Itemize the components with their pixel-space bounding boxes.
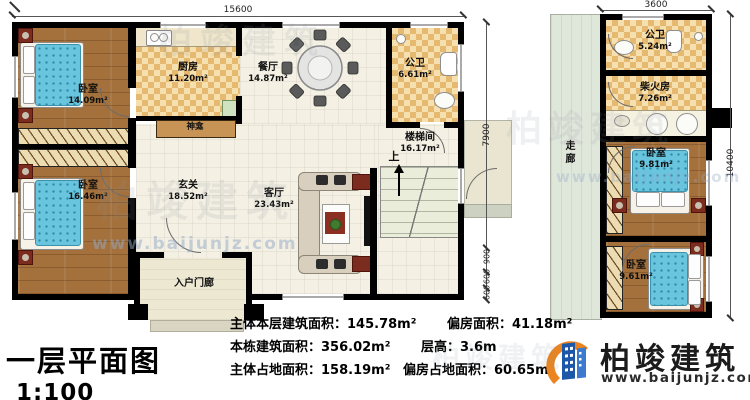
window [160,22,206,28]
window [458,44,464,92]
room-area: 6.61m² [398,70,432,80]
room-name: 卧室 [646,148,666,160]
dimension-line [600,10,712,11]
brand-url-text: www.baijunjz.com [601,370,750,386]
room-label-corridor: 走廊 [562,140,574,166]
room-area: 14.09m² [68,96,107,106]
room-name: 公卫 [405,58,425,70]
porch-column [128,304,148,320]
room-label-living: 客厅 23.43m² [246,188,302,210]
wall [18,144,130,149]
room-area: 7.26m² [638,94,672,104]
stat-label: 主体本层建筑面积： [230,317,347,332]
room-name: 走廊 [562,140,574,166]
title-text: 一层平面图 [6,344,161,378]
dimension-main-right: 7900 [482,120,492,150]
dimension-value: 10400 [726,149,736,178]
room-name: 卧室 [78,180,98,192]
room-label-kitchen: 厨房 11.20m² [160,62,216,84]
wall [370,168,377,294]
stat-value: 3.6m [460,340,497,355]
room-area: 5.24m² [638,42,672,52]
up-arrow-icon [394,164,404,173]
sofa-cushion [316,175,328,185]
dimension-side-top: 3600 [600,0,712,10]
room-label-side-bedroomB: 卧室 9.61m² [608,260,664,282]
pillow [23,46,35,74]
window [12,56,18,98]
floor-plan-canvas: 卧室 14.09m² 卧室 16.46m² 厨房 11.20m² 餐厅 14.8… [0,0,750,400]
scale-label: 1:100 [16,380,94,400]
pillow [23,212,35,240]
window [706,160,712,206]
room-label-shrine: 神龛 [156,122,234,132]
dimension-side-right: 10400 [726,146,736,180]
corridor-floor [550,14,602,320]
wall [600,14,606,318]
room-label-firewood: 柴火房 7.26m² [622,82,688,104]
up-text: 上 [389,150,400,163]
room-name: 卧室 [78,84,98,96]
wall [606,70,706,76]
room-area: 18.52m² [168,192,207,202]
room-area: 9.81m² [639,160,673,170]
room-area: 14.87m² [248,74,287,84]
room-area: 9.61m² [619,272,653,282]
page-title: 一层平面图 1:100 [6,338,256,400]
room-name: 客厅 [264,188,284,200]
wall [236,22,242,56]
room-area: 23.43m² [254,200,293,210]
wall [444,122,464,128]
nightstand [691,198,706,213]
room-area: 16.17m² [400,144,439,154]
wall [128,22,136,88]
stat-label: 层高： [421,340,460,355]
stat-label: 偏房占地面积： [403,363,494,378]
stat-value: 356.02m² [321,340,390,355]
stats-block: 主体本层建筑面积：145.78m² 偏房面积：41.18m² 本栋建筑面积：35… [230,313,572,382]
sofa-cushion [334,175,346,185]
stat-label: 偏房面积： [447,317,512,332]
window [410,22,448,28]
sink-basin-icon [159,33,168,42]
room-label-dining: 餐厅 14.87m² [240,62,296,84]
dimension-value: 900 [483,249,492,264]
pillow [688,280,701,305]
stair-arrow-line [398,172,400,196]
room-label-bath: 公卫 6.61m² [386,58,444,80]
nightstand [612,198,627,213]
dimension-value: 3600 [645,0,668,10]
room-area: 16.46m² [68,192,107,202]
dimension-value: 15600 [224,5,253,15]
showerhead-icon [396,34,406,44]
room-area: 11.20m² [168,74,207,84]
wall [128,118,136,168]
nightstand [18,164,33,179]
back-steps [464,204,512,218]
nightstand [18,250,33,265]
room-name: 公卫 [645,30,665,42]
window [282,294,344,300]
room-name: 卧室 [626,260,646,272]
stove-burner-icon [676,113,698,135]
room-name: 厨房 [178,62,198,74]
dimension-main-top: 15600 [12,5,464,15]
window [706,256,712,302]
pillow [636,192,660,207]
stat-value: 158.19m² [321,363,390,378]
stairs [380,166,460,238]
sofa-cushion [334,259,346,269]
room-label-side-bedroomA: 卧室 9.81m² [628,148,684,170]
sink-icon [434,92,455,109]
wall [600,312,712,318]
stats-line-1: 主体本层建筑面积：145.78m² 偏房面积：41.18m² [230,313,572,336]
stair-up-label: 上 [382,150,406,163]
plant-icon [330,219,341,230]
sink-basin-icon [150,33,159,42]
showerhead-icon [694,32,703,41]
stove-burner-icon [646,113,668,135]
stats-line-3: 主体占地面积：158.19m² 偏房占地面积：60.65m² [230,359,572,382]
stats-line-2: 本栋建筑面积：356.02m² 层高：3.6m [230,336,572,359]
pillow [23,76,35,104]
room-name: 楼梯间 [405,132,435,144]
wall [606,236,706,242]
room-name: 玄关 [178,180,198,192]
room-label-side-bath: 公卫 5.24m² [626,30,684,52]
door-opening [458,168,464,204]
sofa-cushion [316,259,328,269]
brand-url: www.baijunjz.com [601,370,750,386]
wall [12,294,134,300]
window [622,14,664,20]
brand-logo-icon [542,332,596,392]
nightstand [18,108,33,123]
tv-cabinet [352,256,371,272]
wall [386,122,420,128]
room-label-bedroom2: 卧室 16.46m² [60,180,116,202]
room-name: 餐厅 [258,62,278,74]
room-name: 入户门廊 [174,278,214,290]
pillow [688,254,701,279]
pillow [661,192,685,207]
stat-value: 41.18m² [512,317,572,332]
dimension-value: 7900 [482,124,492,147]
room-name: 柴火房 [640,82,670,94]
pillow [23,182,35,210]
window [282,22,340,28]
room-label-porch: 入户门廊 [150,278,238,290]
wall [606,136,706,142]
room-label-bedroom1: 卧室 14.09m² [60,84,116,106]
basin-icon [614,115,630,127]
stat-value: 145.78m² [347,317,416,332]
dimension-line [12,16,464,17]
room-name: 神龛 [186,122,203,132]
chimney-block [712,108,732,128]
room-label-foyer: 玄关 18.52m² [160,180,216,202]
tv-cabinet [352,174,371,190]
window [12,192,18,240]
nightstand [18,28,33,43]
wardrobe-icon [18,149,132,167]
